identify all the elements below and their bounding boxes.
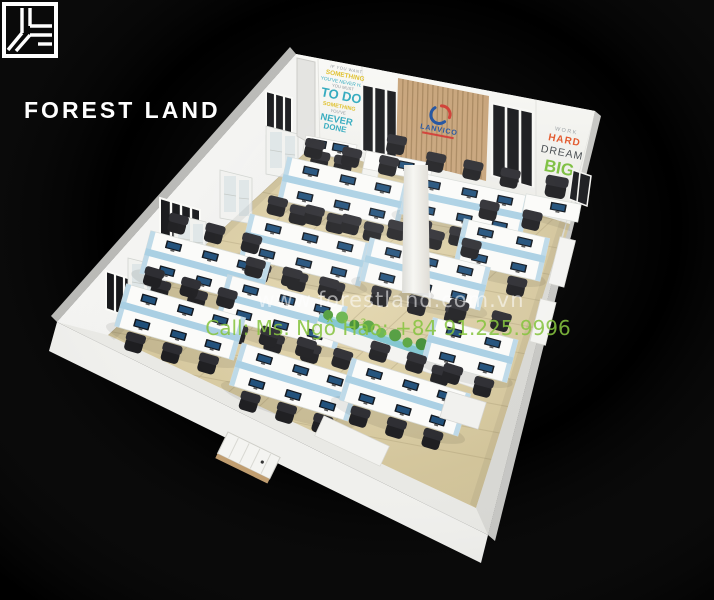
forest-land-logo-icon [0, 0, 60, 60]
forest-land-brand: FOREST LAND [0, 0, 230, 140]
contact-watermark: Call: Ms. Ngô Hảo: +84 91.225.9996 [205, 316, 571, 340]
brand-wordmark: FOREST LAND [24, 97, 224, 124]
website-watermark: www.forestland.com.vn [257, 288, 524, 312]
office-3d-render: IF YOU WANT SOMETHING YOU'VE NEVER HAD Y… [0, 0, 714, 600]
